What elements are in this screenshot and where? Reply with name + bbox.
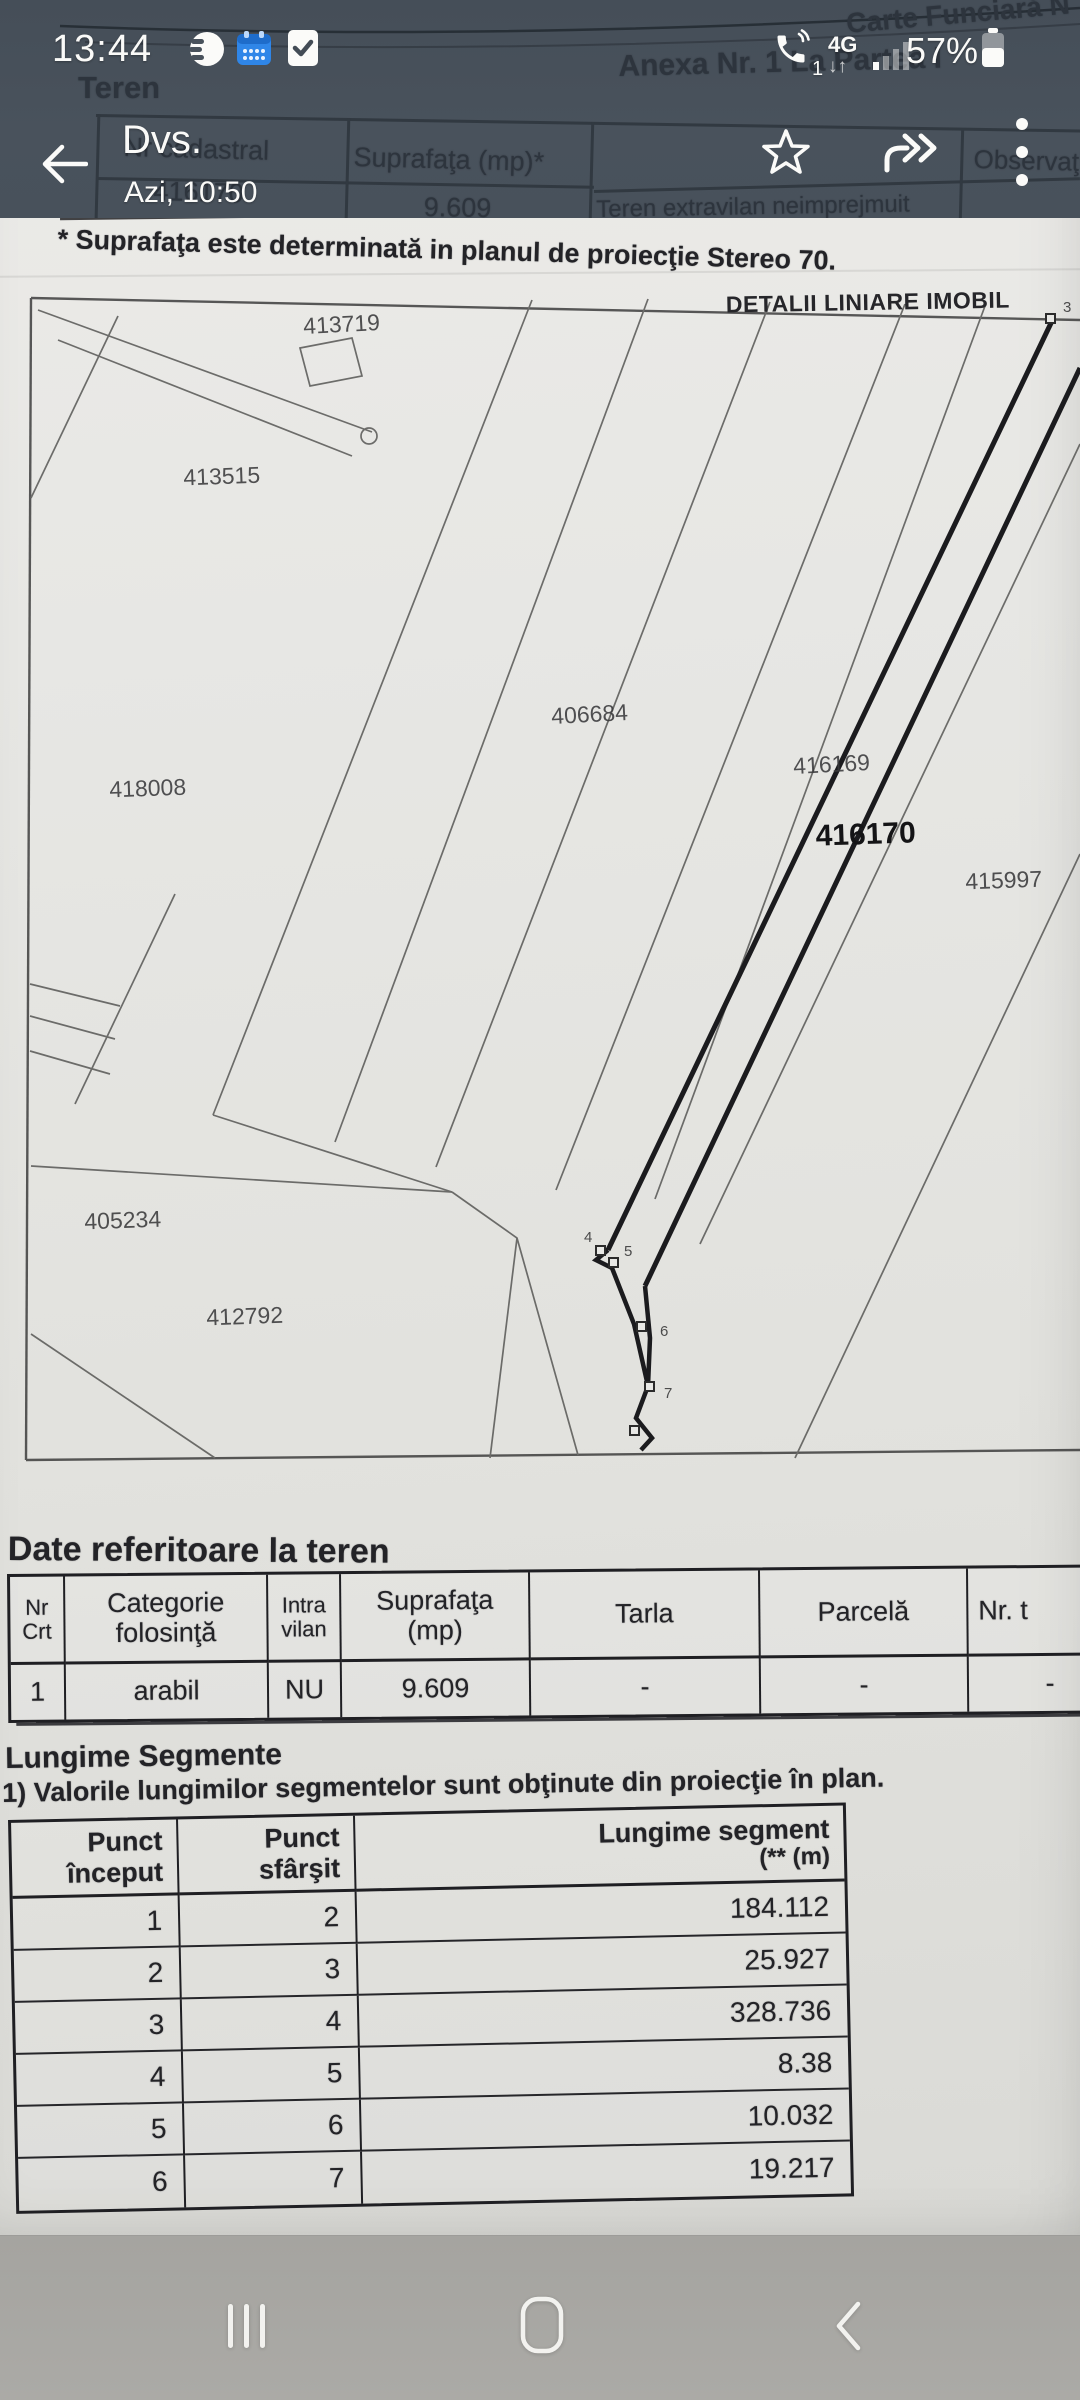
segment-cell: 6 <box>18 2155 186 2210</box>
cadastral-map[interactable]: DETALII LINIARE IMOBIL 413719 413515 406… <box>0 292 1080 1466</box>
point-label: 7 <box>664 1385 672 1402</box>
call-count-badge: 1 <box>812 58 823 81</box>
document-photo[interactable]: * Suprafaţa este determinată in planul d… <box>0 0 1080 2238</box>
parcel-label: 418008 <box>109 774 187 803</box>
segments-col-header: Lungime segment(** (m) <box>355 1806 844 1892</box>
segments-col-header: Punctînceput <box>11 1819 180 1898</box>
forward-icon <box>881 128 943 176</box>
back-nav-button[interactable] <box>808 2291 888 2361</box>
status-time: 13:44 <box>52 28 152 71</box>
star-button[interactable] <box>752 118 820 186</box>
parcel-label: 412792 <box>206 1302 284 1331</box>
parcel-label: 415997 <box>965 866 1043 895</box>
viewer-top-overlay: Carte Funciară N Anexa Nr. 1 La Partea I… <box>0 0 1080 218</box>
parcel-label: 413515 <box>183 462 261 491</box>
sender-title[interactable]: Dvs. <box>122 118 202 163</box>
segments-col-header: Punctsfârşit <box>178 1816 357 1896</box>
doc-val-suprafata: 9.609 <box>423 192 491 218</box>
segment-cell: 4 <box>182 1996 360 2052</box>
forward-button[interactable] <box>876 118 948 186</box>
kebab-menu-icon <box>1015 114 1029 190</box>
overflow-menu-button[interactable] <box>994 112 1050 192</box>
parcel-label: 405234 <box>84 1206 162 1235</box>
segment-cell: 5 <box>183 2048 361 2104</box>
land-col-header: Nr. t <box>968 1567 1080 1656</box>
land-col-header: Tarla <box>530 1570 761 1660</box>
network-arrows-icon: ↓↑ <box>828 56 847 78</box>
segment-cell: 2 <box>180 1892 358 1948</box>
land-cell: 1 <box>11 1664 66 1719</box>
recents-icon <box>226 2303 268 2349</box>
point-label: 4 <box>584 1229 592 1246</box>
paper-fold <box>0 268 1080 278</box>
land-col-header: Intravilan <box>268 1574 342 1663</box>
land-col-header: Parcelă <box>760 1569 969 1659</box>
back-chevron-icon <box>833 2300 863 2352</box>
segment-cell: 5 <box>17 2103 185 2158</box>
home-button[interactable] <box>500 2288 584 2362</box>
land-cell: arabil <box>66 1663 269 1720</box>
parcel-label: 413719 <box>303 309 381 339</box>
battery-percent-label: 57% <box>906 30 978 72</box>
back-arrow-icon <box>40 143 88 185</box>
segments-table: Punctînceput Punctsfârşit Lungime segmen… <box>8 1802 854 2213</box>
land-cell: - <box>761 1657 969 1714</box>
point-label: 5 <box>624 1243 632 1260</box>
parcel-label-highlight: 416170 <box>815 816 916 852</box>
recents-button[interactable] <box>205 2291 289 2361</box>
parcel-labels: 413719 413515 406684 418008 416169 41617… <box>84 309 1043 1330</box>
land-cell: NU <box>269 1662 342 1718</box>
point-label: 6 <box>660 1323 668 1340</box>
doc-val-observatii: Teren extravilan neimprejmuit <box>596 191 910 218</box>
land-cell: - <box>531 1658 761 1715</box>
message-timestamp: Azi, 10:50 <box>124 176 257 210</box>
segment-cell: 7 <box>185 2152 363 2208</box>
land-col-header: NrCrt <box>10 1576 66 1664</box>
back-button[interactable] <box>28 128 100 200</box>
notes-circle-icon <box>188 30 226 73</box>
calendar-icon <box>236 30 272 71</box>
land-table: NrCrt Categoriefolosinţă Intravilan Supr… <box>7 1564 1080 1723</box>
surface-footnote: * Suprafaţa este determinată in planul d… <box>57 224 836 277</box>
land-section-heading: Date referitoare la teren <box>8 1530 390 1572</box>
doc-col-suprafata: Suprafaţa (mp)* <box>353 142 544 178</box>
network-type-label: 4G <box>828 32 857 58</box>
battery-icon <box>980 26 1006 75</box>
parcel-label: 416169 <box>793 749 871 779</box>
home-icon <box>519 2296 565 2354</box>
land-cell: 9.609 <box>342 1660 531 1717</box>
segments-heading: Lungime Segmente <box>5 1738 282 1776</box>
segment-cell: 1 <box>13 1895 181 1950</box>
segment-cell: 2 <box>14 1947 182 2002</box>
doc-teren-heading: Teren <box>78 70 160 106</box>
segment-cell: 6 <box>184 2100 362 2156</box>
land-col-header: Categoriefolosinţă <box>65 1575 269 1665</box>
phone-screen: * Suprafaţa este determinată in planul d… <box>0 0 1080 2400</box>
land-col-header: Suprafaţa(mp) <box>341 1572 531 1662</box>
land-cell: - <box>969 1655 1080 1711</box>
star-icon <box>761 128 811 176</box>
map-title: DETALII LINIARE IMOBIL <box>726 292 1010 317</box>
point-label: 3 <box>1063 299 1071 316</box>
parcel-label: 406684 <box>551 699 629 729</box>
segment-cell: 3 <box>181 1944 359 2000</box>
segment-cell: 19.217 <box>362 2141 851 2203</box>
segment-cell: 4 <box>16 2051 184 2106</box>
segment-cell: 3 <box>15 1999 183 2054</box>
bottom-nav-area <box>0 2235 1080 2400</box>
tasks-check-icon <box>287 29 319 72</box>
